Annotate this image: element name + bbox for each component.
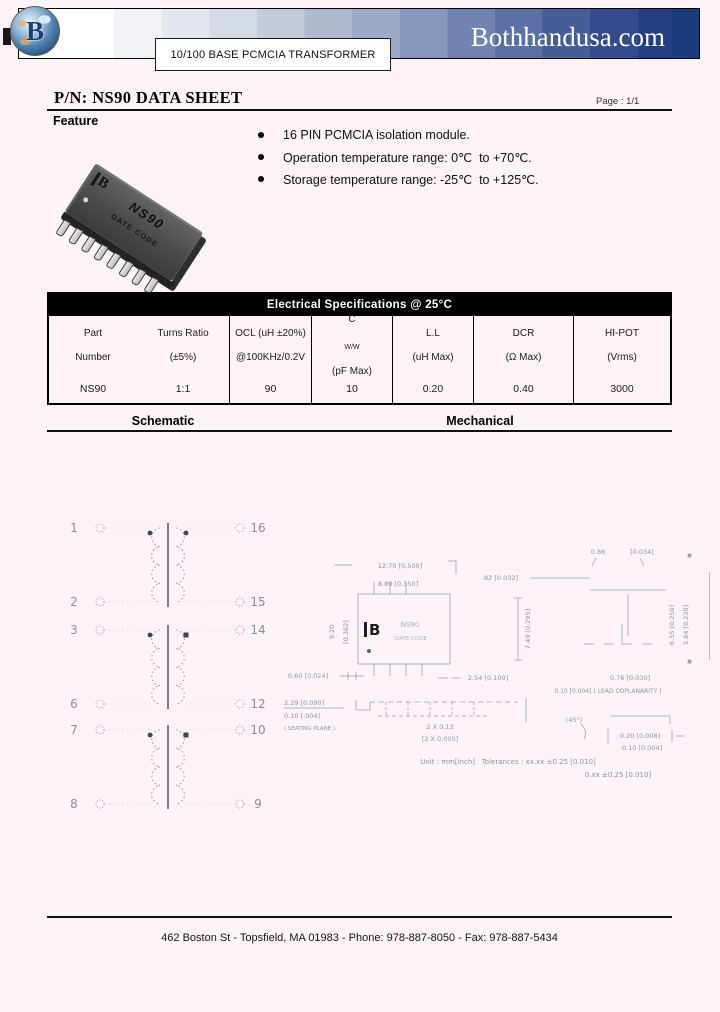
dim-label: 0.76 [0.030] [610,674,650,682]
feature-bullet-list: 16 PIN PCMCIA isolation module. Operatio… [258,128,678,194]
dim-label: (45°) [566,716,583,724]
mech-note-line1: Unit : mm[inch] Tolerances : xx.xx ±0.25… [420,758,596,766]
pin-number-right: 10 [250,723,265,737]
dim-label: [0.362] [342,620,350,644]
chip-pin [80,236,96,254]
col-header-line: (Vrms) [607,346,637,370]
spec-table: Electrical Specifications @ 25°C PartNum… [47,292,672,405]
dim-label: 7.49 [0.295] [524,609,532,649]
dim-label: 2 X 0.13 [426,723,453,731]
bullet-icon [258,176,264,182]
datasheet-page: { "colors": { "banner_navy": "#1c3a7e", … [0,0,720,1012]
mechanical-dimensions: 12.70 [0.500] 8.89 [0.350] .82 [0.032] 9… [284,548,690,779]
spec-col-ocl: OCL (uH ±20%)@100KHz/0.2V 90 [230,316,312,403]
chip-pin [118,260,134,278]
transformer-symbol-1 [96,523,244,607]
dim-label: 0.20 [0.008] [620,732,660,740]
col-header-line: OCL (uH ±20%) [235,322,306,346]
pin-number-right: 14 [250,623,265,637]
page-title: P/N: NS90 DATA SHEET [54,88,242,108]
bullet-text: 16 PIN PCMCIA isolation module. [283,128,470,142]
dim-label: 0.10 [0.004] [622,744,662,752]
dim-label: [2 X 0.005] [422,735,458,743]
bullet-icon [258,154,264,160]
company-globe-logo-icon: B [10,6,60,56]
chip-pin [55,219,71,237]
dim-label: 0.86 [591,548,605,556]
col-header-line: (Ω Max) [506,346,542,370]
cell-hipot: 3000 [574,375,670,403]
list-item: 16 PIN PCMCIA isolation module. [258,128,678,142]
title-rule [47,109,672,111]
col-header-line: Part [84,322,102,346]
dim-label: 2.54 [0.100] [468,674,508,682]
dim-label: 0.60 [0.024] [288,672,328,680]
chip-pin [68,227,84,245]
col-header-line: (uH Max) [412,346,453,370]
page-number: Page : 1/1 [596,96,639,107]
list-item: Storage temperature range: -25℃ to +125℃… [258,172,678,186]
chip-photo: B NS90 DATE CODE [64,163,203,281]
dim-label: 0.10 [.004] [284,712,320,720]
cell-ocl: 90 [230,375,311,403]
chip-pin [130,268,146,286]
bullet-text: Storage temperature range: -25℃ to +125℃… [283,172,539,187]
pin-number-right: 12 [250,697,265,711]
schematic-heading: Schematic [47,414,279,428]
mech-note-line2: 0.xx ±0.25 [0.010] [585,771,652,779]
pin-number-left: 2 [70,595,78,609]
pin-number-left: 8 [70,797,78,811]
pin-number-right: 9 [254,797,262,811]
bullet-text: Operation temperature range: 0℃ to +70℃. [283,150,532,165]
cell-ll: 0.20 [393,375,473,403]
dim-label: 12.70 [0.500] [378,562,422,570]
spec-col-cww: CW/W (pF Max) 10 [312,316,393,403]
bullet-icon [258,132,264,138]
mech-part-label: NS90 [401,621,420,629]
col-header-line: Number [75,346,111,370]
cell-dcr: 0.40 [474,375,573,403]
col-header-line: DCR [513,322,535,346]
spec-col-part-number: PartNumber NS90 [49,316,137,403]
mechanical-drawing: B NS90 DATE CODE 12.70 [0.500] 8.89 [0.3… [278,532,710,790]
col-header-line: HI-POT [605,322,639,346]
pin-number-right: 15 [250,595,265,609]
transformer-symbol-2 [96,625,244,709]
col-header-line: L.L [426,322,440,346]
mechanical-heading: Mechanical [360,414,600,428]
dim-label: 0.10 [0.004] ( LEAD COPLANARITY ) [554,688,661,695]
footer-rule [47,916,672,918]
feature-heading: Feature [53,114,98,128]
dim-label: [0.034] [630,548,654,556]
site-name: Bothhandusa.com [471,24,665,51]
spec-col-hipot: HI-POT(Vrms) 3000 [574,316,670,403]
list-item: Operation temperature range: 0℃ to +70℃. [258,150,678,164]
pin-number-right: 16 [250,521,265,535]
mech-datecode-label: DATE CODE [395,636,427,642]
product-banner: 10/100 BASE PCMCIA TRANSFORMER [155,38,391,71]
dim-label: 8.89 [0.350] [378,580,418,588]
dim-label: 9.20 [328,625,336,639]
col-header-line: Turns Ratio [157,322,208,346]
pin-number-left: 6 [70,697,78,711]
pin-number-left: 3 [70,623,78,637]
col-header-line: (pF Max) [332,360,372,384]
dim-label: 5.84 [0.230] [682,605,690,645]
pin-number-left: 1 [70,521,78,535]
spec-col-ll: L.L(uH Max) 0.20 [393,316,474,403]
col-header-line: (±5%) [170,346,197,370]
cell-part-number: NS90 [49,375,137,403]
transformer-symbol-3 [96,725,244,809]
mech-logo-letter: B [369,621,380,639]
dim-label: ( SEATING PLANE ) [284,726,335,732]
mechanical-topview-branding: B NS90 DATE CODE [364,621,427,653]
chip-pin [93,244,109,262]
spec-table-grid: PartNumber NS90 Turns Ratio(±5%) 1:1 OCL… [49,316,670,403]
mechanical-lines [284,554,691,744]
logo-letter: B [26,16,44,47]
dim-label: 6.35 [0.250] [668,605,676,645]
spec-col-dcr: DCR(Ω Max) 0.40 [474,316,574,403]
col-header-line: CW/W [344,308,359,360]
chip-pin [105,252,121,270]
section-rule [47,430,672,432]
spec-col-turns-ratio: Turns Ratio(±5%) 1:1 [137,316,230,403]
dim-label: 2.29 [0.090] [284,699,324,707]
col-header-line: @100KHz/0.2V [236,346,305,370]
footer-address: 462 Boston St - Topsfield, MA 01983 - Ph… [47,932,672,944]
cell-turns-ratio: 1:1 [137,375,229,403]
pin-number-left: 7 [70,723,78,737]
dim-label: .82 [0.032] [482,574,518,582]
